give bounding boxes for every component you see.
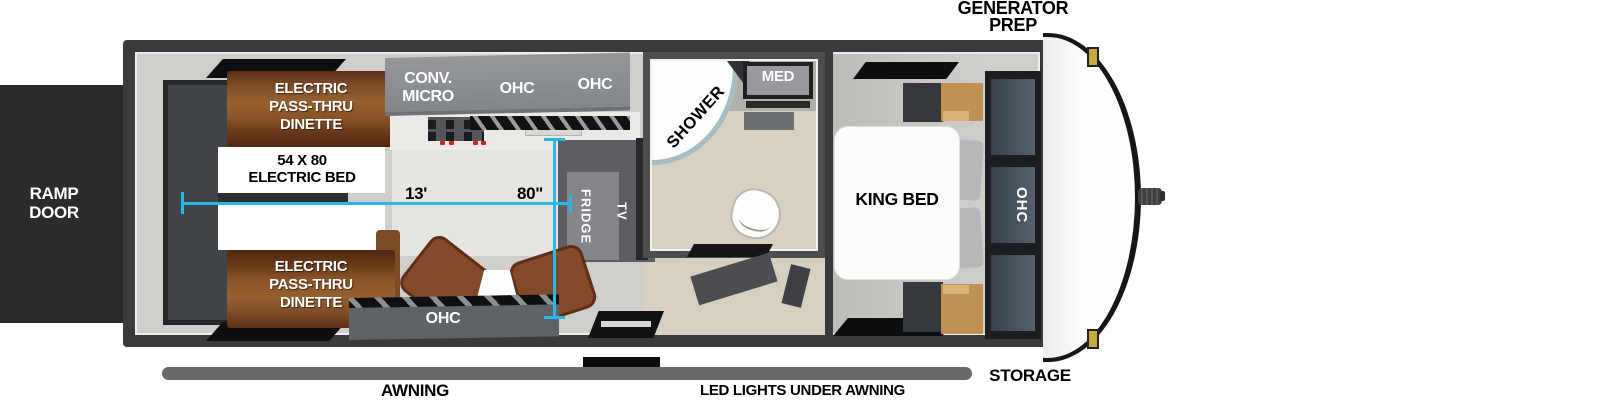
bed-deck [218,204,385,250]
generator-prep-label: GENERATOR PREP [953,0,1073,34]
bedside-cabinet-bottom-trim [943,285,969,294]
burner-knob [440,141,445,145]
front-cap [1043,33,1141,362]
dimension-cap-top [544,138,565,141]
bedside-cabinet-top-dark [903,83,943,122]
bedside-cabinet-bottom-dark [903,282,943,332]
king-bed-label: KING BED [834,190,960,210]
bath-vanity-shelf [746,101,810,108]
cabinet-trim-stripe [470,116,630,130]
hitch-coupler [1138,188,1162,205]
ramp-door-label: RAMP DOOR [14,184,94,222]
conv-micro-label: CONV. MICRO [392,70,464,106]
ohc-kitchen-right-label: OHC [570,76,620,94]
burner-knob [449,141,454,145]
ohc-bedroom-label: OHC [1012,180,1029,230]
hitch-tip [1160,191,1165,201]
dimension-length-label: 13' [396,184,436,203]
fridge-label: FRIDGE [578,177,593,257]
bedroom-roof-vent-top [853,62,959,79]
electric-bed-label: 54 X 80 ELECTRIC BED [242,152,362,186]
dimension-cap-bottom [544,316,565,319]
dimension-cap-left [181,192,184,214]
clearance-marker-bottom [1087,329,1099,349]
awning-label: AWNING [355,381,475,400]
dinette-top-label: ELECTRIC PASS-THRU DINETTE [256,80,366,134]
dimension-line-vertical [553,140,556,318]
entry-step [583,357,660,367]
storage-label: STORAGE [975,366,1085,385]
bedside-cabinet-top-trim [943,111,969,121]
bedroom-divider-wall [825,52,833,335]
wardrobe-panel [991,255,1035,331]
dimension-cap-right [569,195,572,213]
dimension-width-label: 80" [506,184,554,203]
bath-vanity [744,112,794,130]
burner-knob [473,141,478,145]
tv-label: TV [614,196,629,226]
led-lights-label: LED LIGHTS UNDER AWNING [685,383,920,400]
burner-knob [481,141,486,145]
ohc-kitchen-left-label: OHC [492,80,542,98]
ohc-kitchen-bottom-label: OHC [418,310,468,328]
floorplan-canvas: RAMP DOOR ELECTRIC PASS-THRU DINETTE 54 … [0,0,1600,404]
clearance-marker-top [1087,47,1099,67]
toilet-seat-line [737,209,773,235]
med-cabinet-label: MED [743,69,813,86]
wardrobe-panel [991,79,1035,155]
awning-bar [162,367,972,380]
entry-mat-stripe [601,321,651,327]
